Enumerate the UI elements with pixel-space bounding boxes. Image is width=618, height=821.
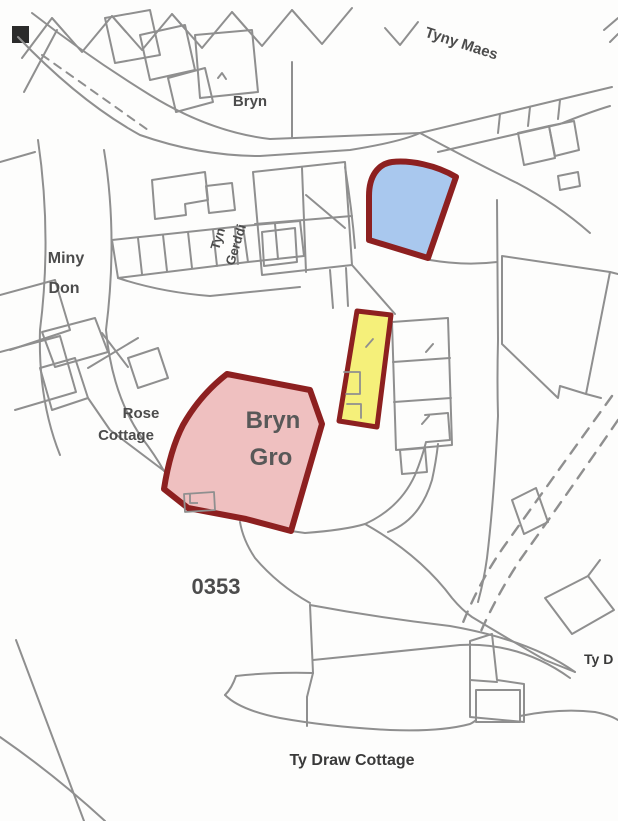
label-bryn-gro-line2: Gro	[250, 444, 293, 471]
label-rose-cottage-line2: Cottage	[98, 427, 154, 444]
label-rose-cottage-line1: Rose	[123, 405, 160, 422]
label-plot-number: 0353	[192, 574, 241, 599]
cadastral-map-svg: Tyny Maes Bryn Tyn Gerddi Miny Don Rose …	[0, 0, 618, 821]
label-miny-don-line1: Miny	[48, 250, 85, 267]
label-bryn-house: Bryn	[233, 93, 267, 110]
label-ty-d-partial: Ty D	[584, 651, 613, 667]
label-bryn-gro-line1: Bryn	[246, 407, 301, 434]
label-ty-draw-cottage: Ty Draw Cottage	[289, 752, 414, 769]
label-miny-don-line2: Don	[48, 280, 79, 297]
map-canvas: Tyny Maes Bryn Tyn Gerddi Miny Don Rose …	[0, 0, 618, 821]
